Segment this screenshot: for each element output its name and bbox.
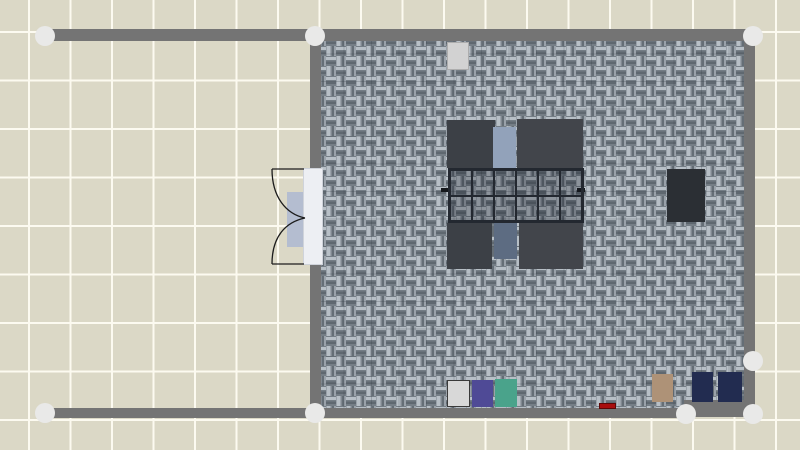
- grid-table-cell: [450, 170, 472, 196]
- wall-top[interactable]: [45, 29, 755, 41]
- doormat-red[interactable]: [599, 403, 616, 409]
- box-teal[interactable]: [495, 379, 517, 407]
- joint-bottom-left-corner[interactable]: [305, 403, 325, 423]
- joint-bottom-right-corner[interactable]: [743, 404, 763, 424]
- floor-plan-view: [0, 0, 800, 450]
- chair-bottom[interactable]: [494, 223, 517, 259]
- joint-top-left-corner[interactable]: [305, 26, 325, 46]
- joint-top-far-left[interactable]: [35, 26, 55, 46]
- grid-table[interactable]: [448, 168, 584, 223]
- table-top-right[interactable]: [517, 119, 583, 168]
- cabinet-top-wall[interactable]: [447, 42, 469, 70]
- box-purple[interactable]: [472, 380, 493, 407]
- grid-table-cell: [472, 196, 494, 222]
- box-white[interactable]: [447, 380, 470, 407]
- grid-table-cell: [538, 196, 560, 222]
- door-swing-paths: [272, 169, 305, 264]
- joint-top-right-corner[interactable]: [743, 26, 763, 46]
- door-swing-arcs[interactable]: [262, 158, 322, 270]
- table-top-left[interactable]: [447, 120, 495, 168]
- table-bottom-left[interactable]: [447, 223, 492, 269]
- joint-right-mid[interactable]: [743, 351, 763, 371]
- joint-bottom-mid[interactable]: [676, 404, 696, 424]
- grid-table-cell: [538, 170, 560, 196]
- grid-table-cell: [516, 196, 538, 222]
- joint-bottom-far-left[interactable]: [35, 403, 55, 423]
- wall-bottom-main[interactable]: [45, 408, 688, 418]
- plan-canvas[interactable]: [0, 0, 800, 450]
- grid-table-cell: [560, 196, 582, 222]
- grid-table-cell: [494, 196, 516, 222]
- table-bottom-right[interactable]: [519, 223, 583, 269]
- box-tan[interactable]: [652, 374, 673, 402]
- grid-table-cell: [516, 170, 538, 196]
- chair-top[interactable]: [493, 127, 516, 169]
- box-navy-2[interactable]: [718, 372, 742, 402]
- grid-table-cell: [494, 170, 516, 196]
- cabinet-right-wall[interactable]: [667, 169, 705, 222]
- grid-table-cell: [560, 170, 582, 196]
- grid-table-cell: [450, 196, 472, 222]
- grid-table-cell: [472, 170, 494, 196]
- box-navy-1[interactable]: [692, 372, 713, 402]
